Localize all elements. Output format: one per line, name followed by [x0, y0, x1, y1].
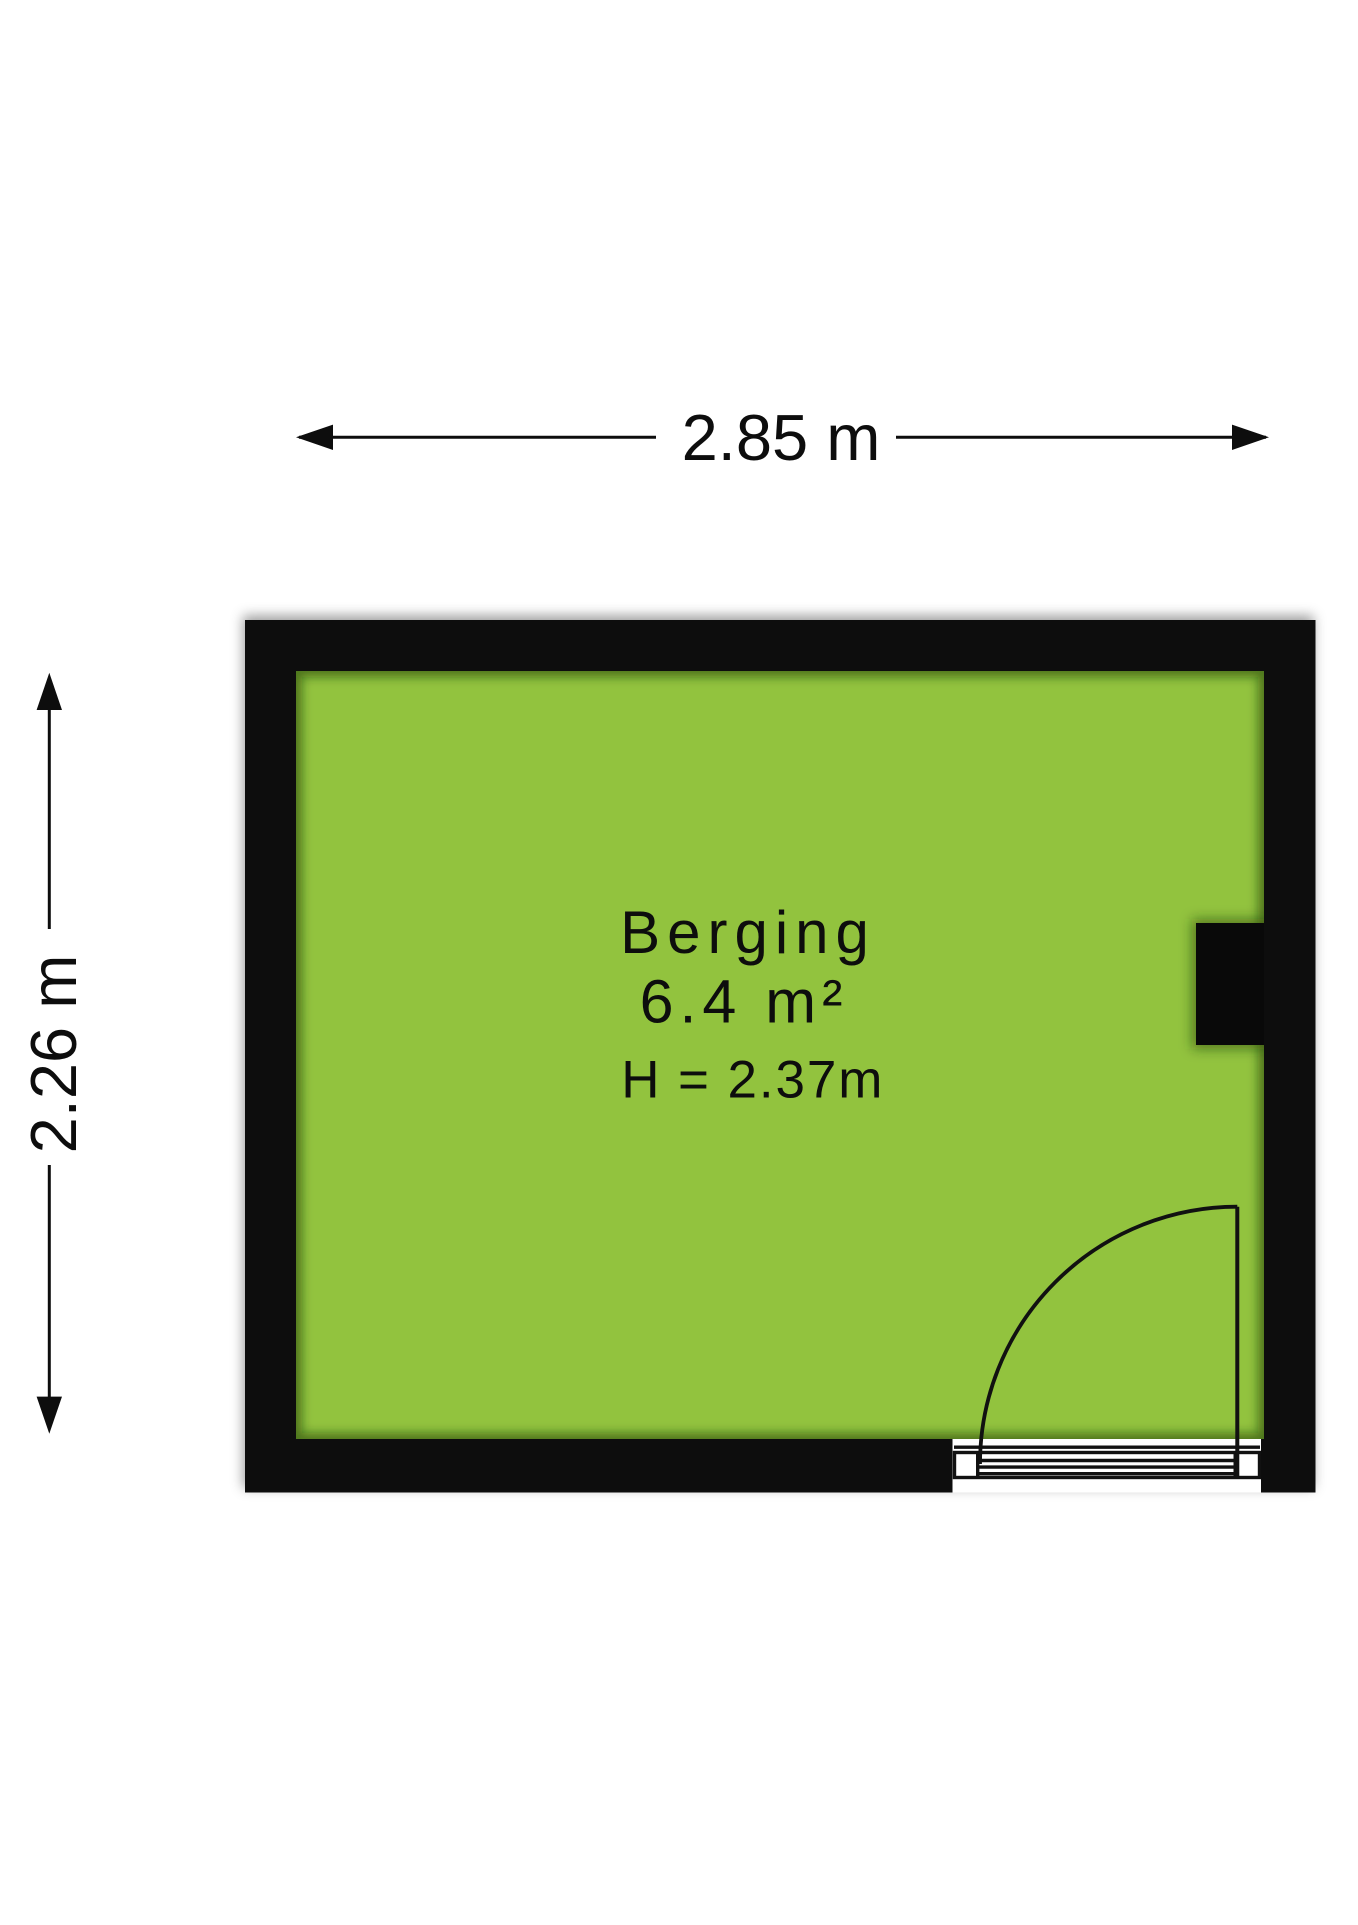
svg-text:2.85 m: 2.85 m: [682, 401, 881, 474]
svg-text:2.26 m: 2.26 m: [17, 955, 90, 1154]
svg-text:6.4 m²: 6.4 m²: [640, 968, 849, 1036]
svg-text:Berging: Berging: [620, 899, 876, 966]
svg-text:H = 2.37m: H = 2.37m: [621, 1051, 884, 1110]
